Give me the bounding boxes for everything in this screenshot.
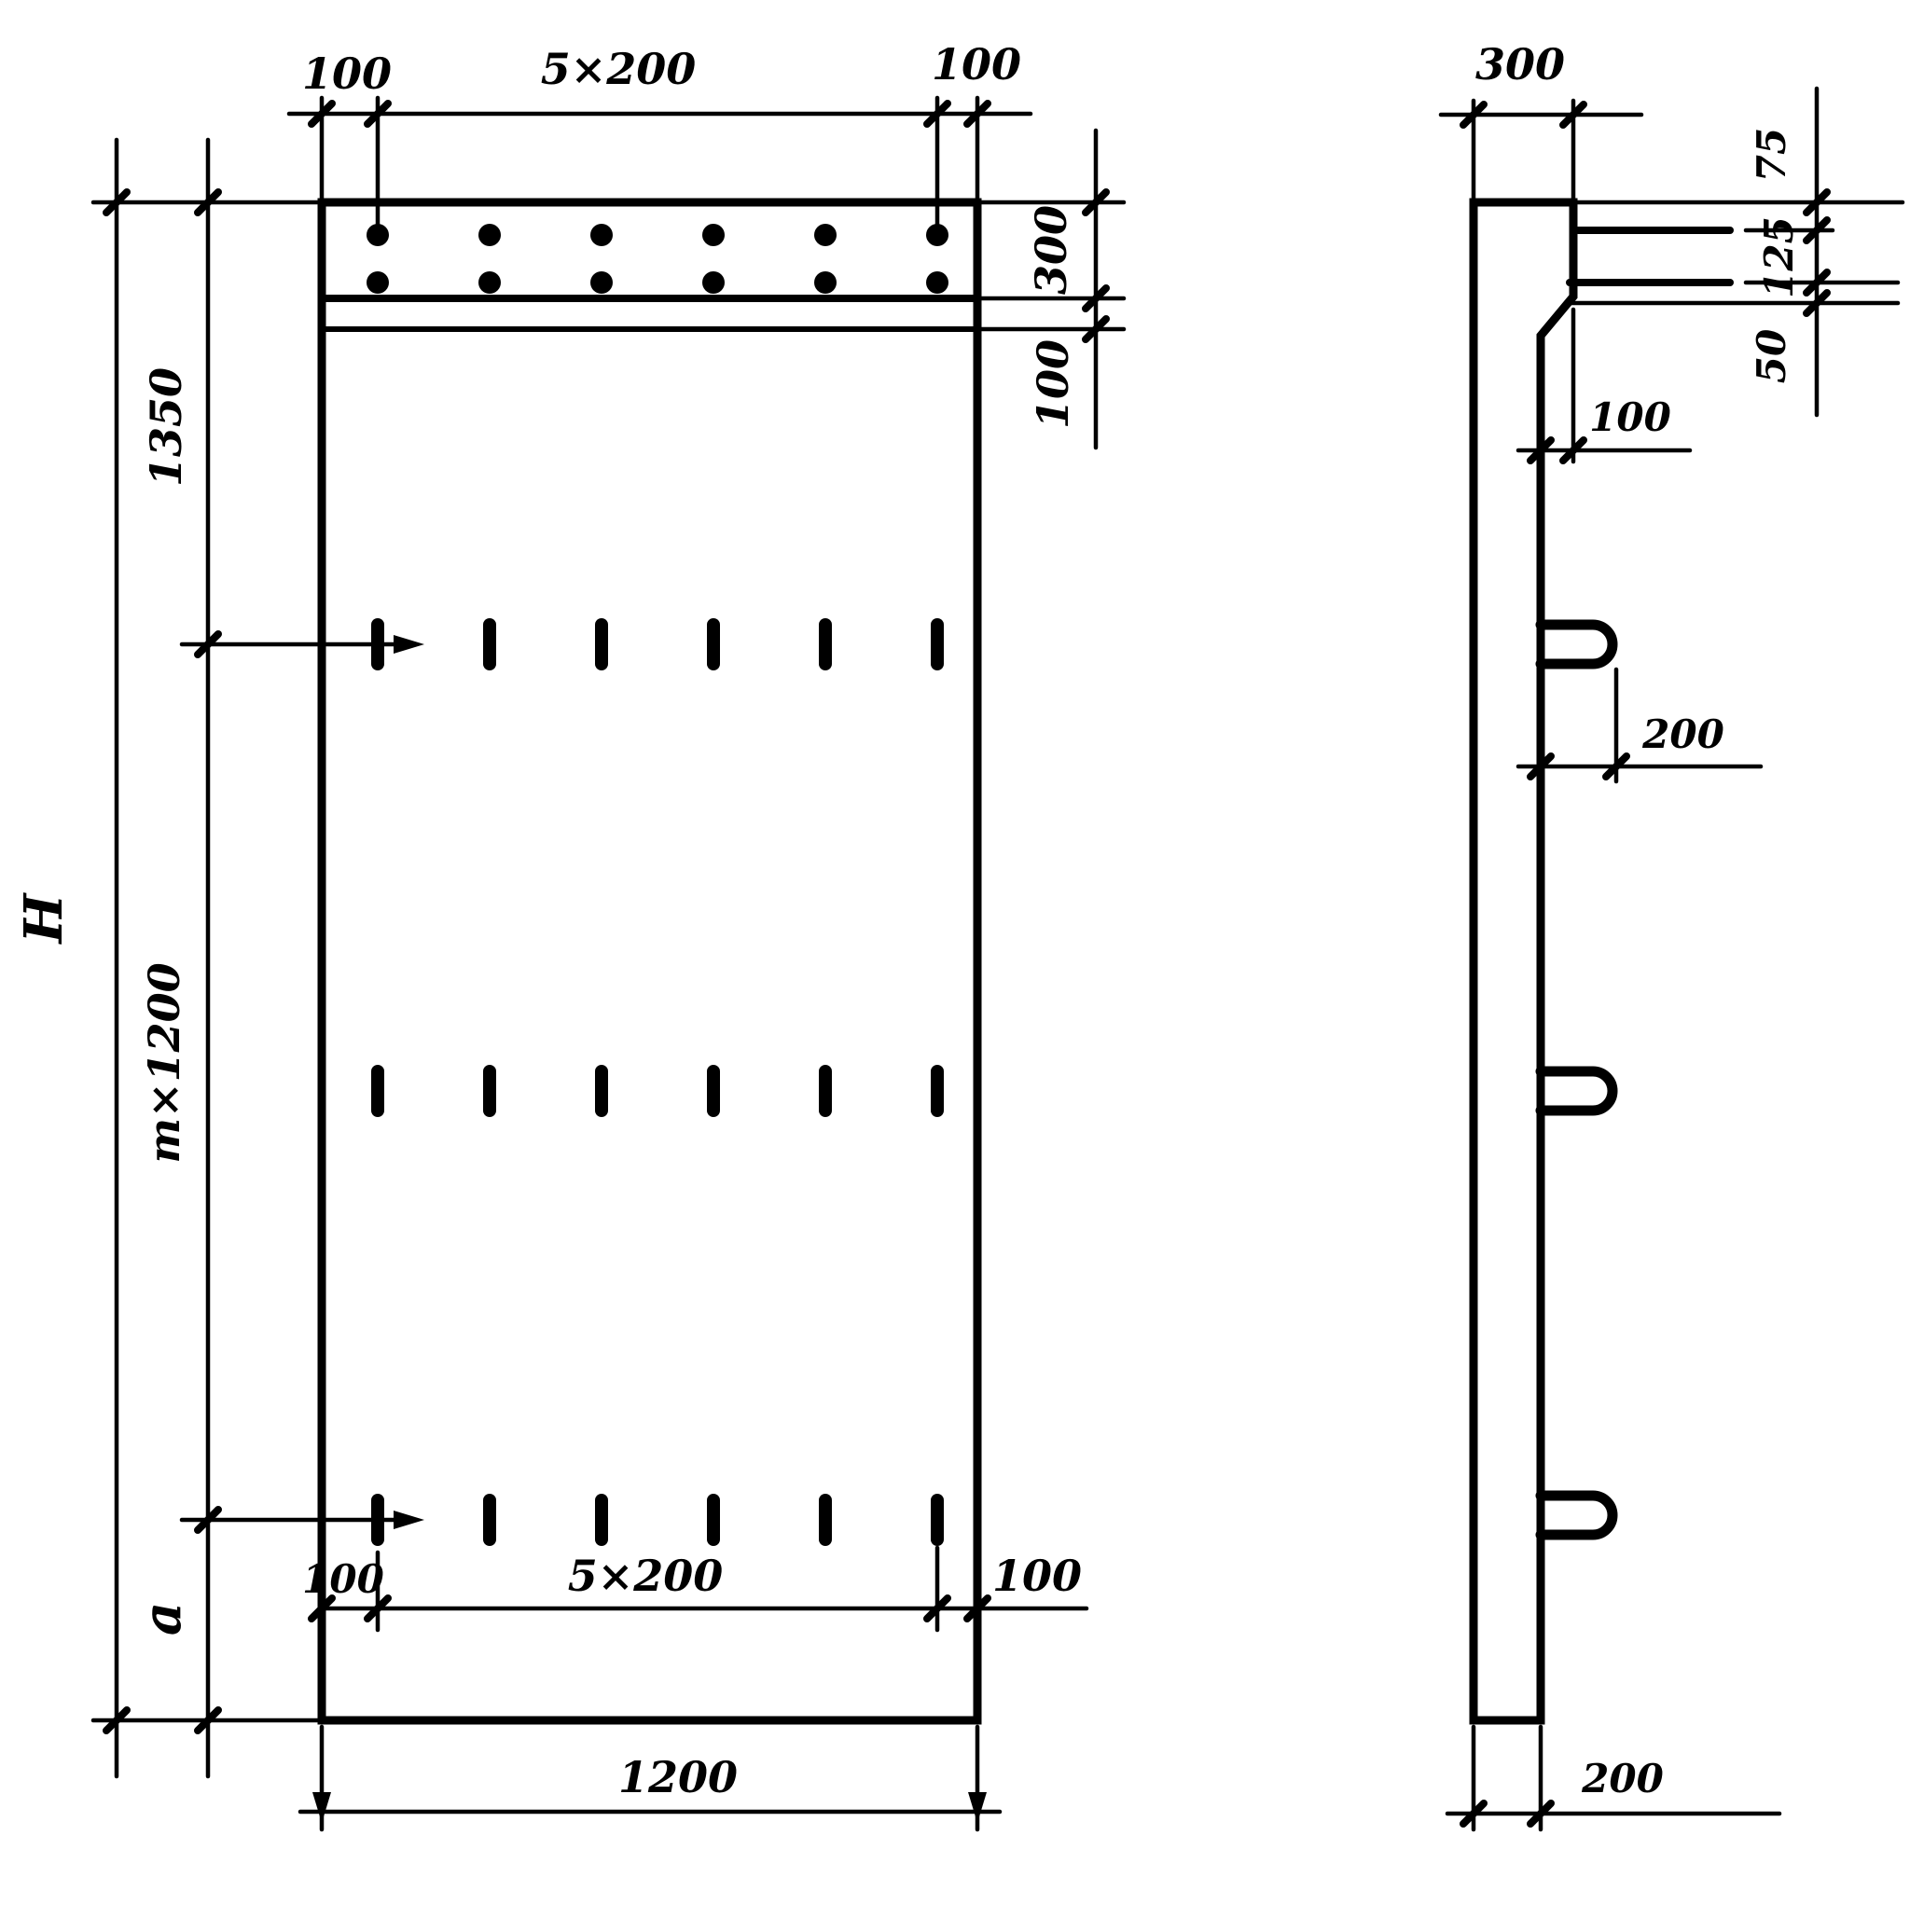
dim-strip-300: 300 <box>1026 205 1076 295</box>
front-left-dimension: H 1350 m×1200 a <box>13 140 322 1776</box>
dim-mx1200: m×1200 <box>139 962 189 1163</box>
dash-marks-row-2 <box>371 1065 944 1117</box>
dim-side-bottom-200: 200 <box>1581 1756 1664 1801</box>
dim-bottom-spacing-5x200: 5×200 <box>568 1551 724 1601</box>
dim-step-100: 100 <box>1589 394 1671 440</box>
front-right-dimension: 300 100 <box>981 131 1124 448</box>
lifting-loops <box>1541 625 1612 1535</box>
dim-bottom-left-100: 100 <box>302 1556 384 1602</box>
dim-a: a <box>131 1602 193 1635</box>
side-view: 300 75 125 50 100 200 <box>1441 39 1903 1829</box>
dim-top-right-100: 100 <box>932 39 1021 90</box>
dim-dowel-50: 50 <box>1749 329 1794 383</box>
side-loop-dimension: 200 <box>1518 669 1761 781</box>
dim-dowel-75: 75 <box>1749 128 1794 182</box>
dim-dowel-125: 125 <box>1756 216 1802 298</box>
dash-marks-row-1 <box>371 618 944 670</box>
dim-side-300: 300 <box>1475 39 1565 90</box>
front-width-dimension: 1200 <box>300 1727 1000 1829</box>
dim-height-H: H <box>13 891 75 945</box>
anchor-dots <box>367 224 948 294</box>
dim-strip-band-100: 100 <box>1028 339 1078 429</box>
front-view: 100 5×200 100 300 100 <box>13 39 1124 1829</box>
technical-drawing: 100 5×200 100 300 100 <box>0 0 1910 1932</box>
front-top-dimension: 100 5×200 100 <box>289 39 1031 226</box>
dim-top-spacing-5x200: 5×200 <box>541 44 697 94</box>
dash-marks-row-3 <box>371 1494 944 1546</box>
front-bottom-inner-dimension: 100 5×200 100 <box>302 1548 1086 1630</box>
dim-loop-200: 200 <box>1641 711 1724 757</box>
dim-width-1200: 1200 <box>618 1752 738 1802</box>
front-panel-outline <box>322 202 977 1720</box>
side-top-dimension: 300 <box>1441 39 1641 202</box>
side-bottom-dimension: 200 <box>1447 1727 1779 1829</box>
top-dowels <box>1570 202 1903 303</box>
drawing-canvas: 100 5×200 100 300 100 <box>0 0 1910 1932</box>
dim-1350: 1350 <box>141 367 191 487</box>
side-dowel-dimension: 75 125 50 <box>1749 89 1827 415</box>
dim-top-left-100: 100 <box>302 48 392 99</box>
dim-bottom-right-100: 100 <box>992 1551 1082 1601</box>
